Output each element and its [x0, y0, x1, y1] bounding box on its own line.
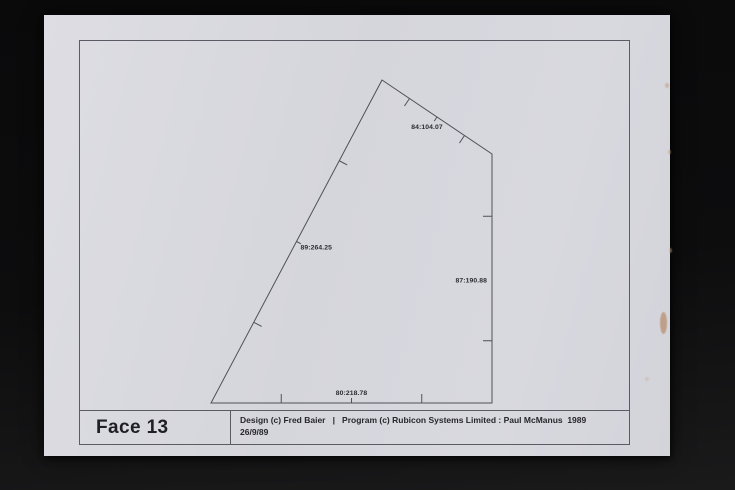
paper-sheet: 84:104.0787:190.8880:218.7889:264.25 Fac…: [44, 15, 670, 456]
photo-background: 84:104.0787:190.8880:218.7889:264.25 Fac…: [0, 0, 735, 490]
face-title-cell: Face 13: [80, 411, 231, 444]
credit-line-1: Design (c) Fred Baier | Program (c) Rubi…: [240, 415, 629, 427]
paper-stain: [645, 377, 649, 381]
credits-cell: Design (c) Fred Baier | Program (c) Rubi…: [231, 411, 629, 444]
paper-stain: [665, 83, 669, 88]
title-block: Face 13 Design (c) Fred Baier | Program …: [80, 410, 629, 444]
paper-stain: [660, 312, 667, 334]
paper-stain: [669, 248, 672, 253]
credit-line-2: 26/9/89: [240, 427, 629, 439]
face-label: Face 13: [96, 417, 169, 439]
paper-stain: [668, 150, 671, 154]
drawing-frame-border: Face 13 Design (c) Fred Baier | Program …: [79, 40, 630, 445]
